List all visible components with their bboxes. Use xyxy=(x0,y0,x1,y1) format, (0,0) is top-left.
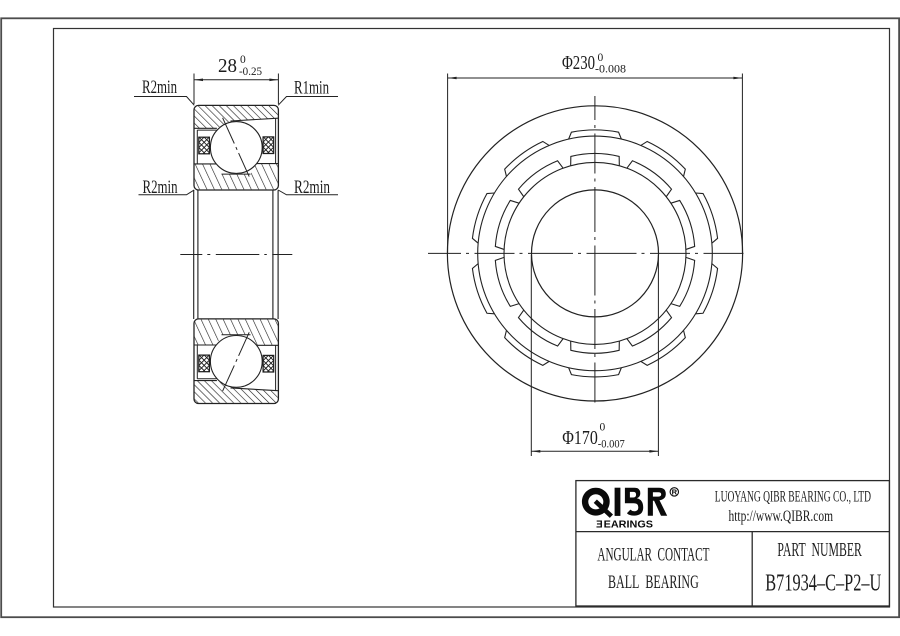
svg-text:-0.007: -0.007 xyxy=(598,439,625,451)
svg-text:0: 0 xyxy=(240,54,246,66)
svg-text:0: 0 xyxy=(600,422,606,434)
svg-text:R2min: R2min xyxy=(143,177,178,198)
svg-text:EARINGS: EARINGS xyxy=(604,519,654,530)
svg-text:-0.008: -0.008 xyxy=(595,64,626,76)
svg-text:R1min: R1min xyxy=(294,78,329,99)
svg-text:-0.25: -0.25 xyxy=(239,66,262,78)
svg-text:0: 0 xyxy=(598,52,604,64)
svg-text:E: E xyxy=(596,519,603,530)
svg-text:B71934–C–P2–U: B71934–C–P2–U xyxy=(765,569,881,596)
svg-text:PART NUMBER: PART NUMBER xyxy=(777,540,862,561)
svg-text:R: R xyxy=(672,488,678,497)
svg-text:BALL BEARING: BALL BEARING xyxy=(608,573,699,593)
svg-text:ANGULAR CONTACT: ANGULAR CONTACT xyxy=(597,546,709,566)
svg-text:R2min: R2min xyxy=(142,77,177,98)
svg-text:Φ230: Φ230 xyxy=(562,52,595,74)
svg-text:http://www.QIBR.com: http://www.QIBR.com xyxy=(729,508,834,525)
svg-text:Φ170: Φ170 xyxy=(562,427,598,449)
svg-text:28: 28 xyxy=(218,56,237,77)
svg-text:LUOYANG QIBR BEARING CO., LTD: LUOYANG QIBR BEARING CO., LTD xyxy=(715,489,871,506)
svg-text:R2min: R2min xyxy=(294,177,330,198)
